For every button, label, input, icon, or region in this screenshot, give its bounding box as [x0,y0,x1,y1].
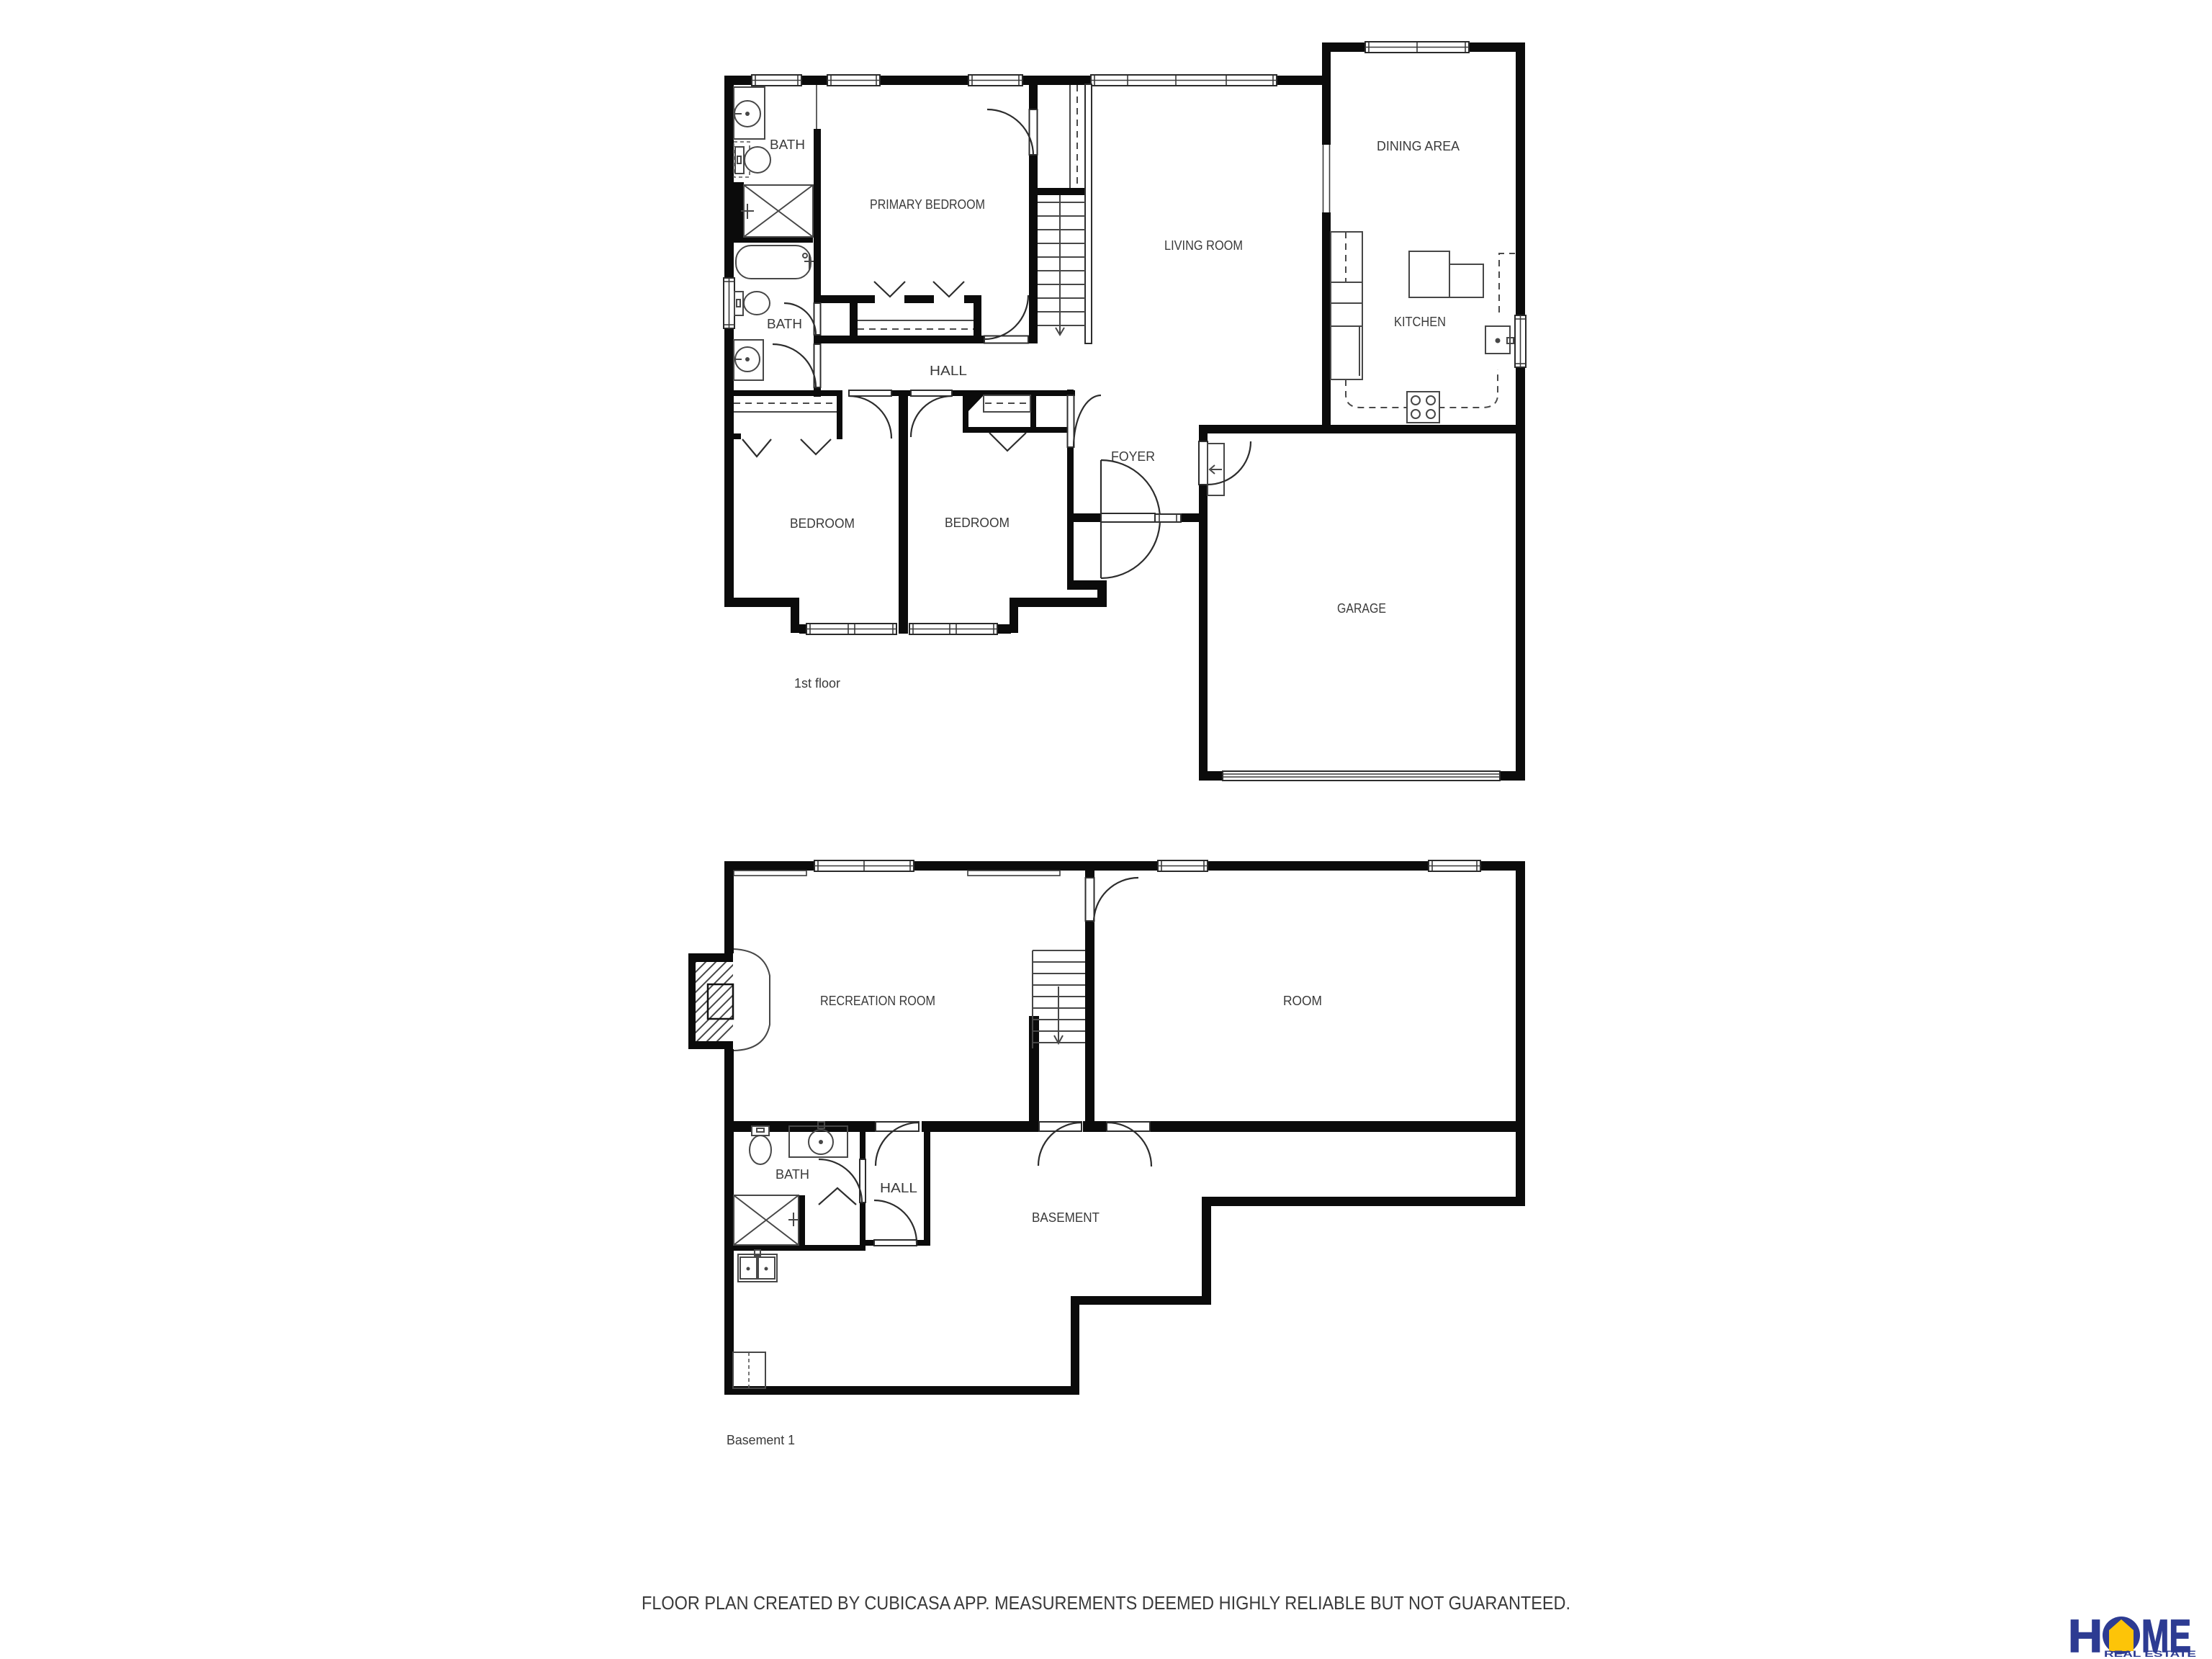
svg-text:PRIMARY BEDROOM: PRIMARY BEDROOM [870,197,985,212]
svg-text:LIVING ROOM: LIVING ROOM [1164,238,1243,253]
svg-text:H: H [2068,1610,2103,1659]
svg-text:BEDROOM: BEDROOM [945,515,1010,530]
svg-text:BASEMENT: BASEMENT [1032,1210,1100,1225]
svg-text:FOYER: FOYER [1111,449,1155,464]
svg-text:BATH: BATH [775,1166,809,1182]
svg-text:HALL: HALL [880,1180,917,1195]
svg-text:BATH: BATH [770,137,805,152]
svg-text:FLOOR PLAN CREATED BY CUBICASA: FLOOR PLAN CREATED BY CUBICASA APP. MEAS… [642,1592,1570,1614]
svg-text:RECREATION ROOM: RECREATION ROOM [820,993,935,1008]
svg-text:GARAGE: GARAGE [1337,601,1386,616]
svg-text:BEDROOM: BEDROOM [790,516,855,531]
svg-text:KITCHEN: KITCHEN [1394,314,1446,329]
svg-text:HALL: HALL [930,363,967,378]
svg-text:ROOM: ROOM [1283,993,1322,1008]
svg-text:1st floor: 1st floor [794,675,840,691]
svg-text:DINING AREA: DINING AREA [1377,138,1460,153]
svg-text:BATH: BATH [767,316,802,331]
svg-text:Basement 1: Basement 1 [727,1432,795,1447]
svg-text:REAL ESTATE: REAL ESTATE [2104,1650,2197,1659]
